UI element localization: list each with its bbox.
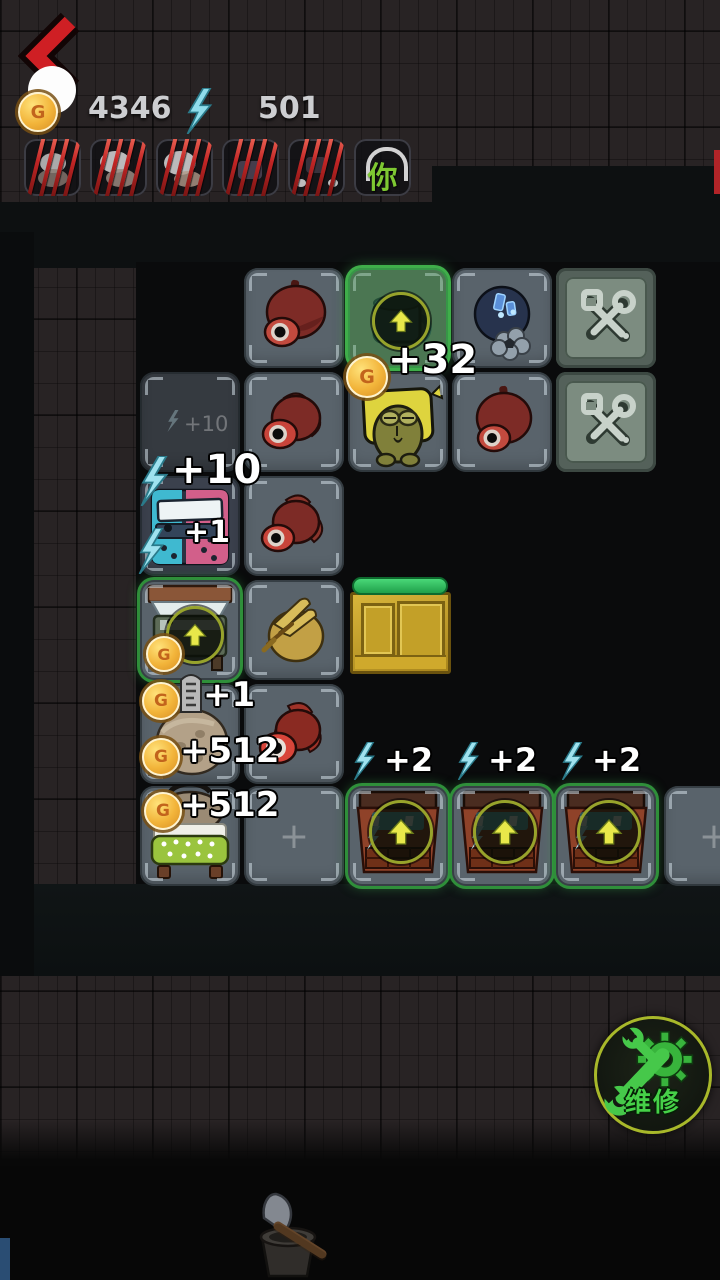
coin-letter: G — [157, 645, 170, 664]
background-bottom-band — [0, 1166, 720, 1280]
energy-icon — [136, 528, 166, 574]
cell-red-creature[interactable] — [452, 372, 552, 472]
energy-icon — [456, 742, 480, 780]
red-creature-icon — [244, 268, 344, 368]
game-screen: G 4346 501 — [0, 0, 720, 1280]
cell-repair-tile[interactable] — [556, 372, 656, 472]
gold-coin-icon: G — [144, 792, 182, 830]
gold-coin-icon: G — [146, 636, 182, 672]
grave-bonus-label: +1 — [203, 678, 255, 712]
red-sliver — [714, 150, 720, 194]
energy-icon — [560, 742, 584, 780]
bucket-shovel-icon — [232, 1182, 342, 1280]
coin-letter: G — [154, 747, 168, 767]
cell-generator[interactable] — [452, 786, 552, 886]
gold-coin-icon: G — [142, 682, 180, 720]
blue-sliver — [0, 1238, 10, 1280]
wrench-screwdriver-icon — [566, 382, 646, 462]
roster-slot-defeated[interactable] — [90, 139, 147, 196]
upgrade-arrow-badge — [473, 800, 537, 864]
gravestone-icon — [178, 670, 204, 714]
repair-button-label: 维修 — [597, 1082, 709, 1119]
upgrade-arrow-badge — [577, 800, 641, 864]
cell-empty[interactable]: + — [664, 786, 720, 886]
energy-icon — [352, 742, 376, 780]
cell-generator[interactable] — [556, 786, 656, 886]
energy-bonus-label: +2 — [488, 744, 537, 776]
reward-label: +32 — [388, 340, 477, 380]
ghost-bonus-label: +10 — [184, 412, 228, 436]
energy-amount: 501 — [258, 94, 321, 124]
cell-generator[interactable] — [348, 786, 448, 886]
cell-red-creature[interactable] — [244, 268, 344, 368]
door-progress-bar — [352, 577, 448, 595]
energy-icon — [166, 410, 180, 432]
wrench-screwdriver-icon — [566, 278, 646, 358]
gold-hand-icon — [244, 580, 344, 680]
gold-coin-icon: G — [142, 738, 180, 776]
cell-gold-hand[interactable] — [244, 580, 344, 680]
roster-slot-defeated[interactable] — [24, 139, 81, 196]
gold-bonus-label: +512 — [180, 788, 279, 822]
coin-letter: G — [156, 801, 170, 821]
energy-bonus-label: +2 — [592, 744, 641, 776]
door-panel — [361, 603, 395, 657]
gold-coin-icon: G — [346, 356, 388, 398]
cell-repair-tile[interactable] — [556, 268, 656, 368]
count-label: +1 — [184, 518, 230, 548]
gold-door[interactable] — [350, 592, 451, 674]
roster-slot-defeated[interactable] — [156, 139, 213, 196]
roster-slot-active[interactable]: 你 — [354, 139, 411, 196]
background-band — [34, 884, 720, 976]
door-panel — [397, 601, 445, 661]
energy-bonus-label: +10 — [172, 450, 261, 490]
energy-bonus-label: +2 — [384, 744, 433, 776]
background-band — [0, 202, 720, 268]
coin-letter: G — [31, 102, 46, 123]
repair-button[interactable]: 维修 — [594, 1016, 712, 1134]
coin-letter: G — [359, 366, 375, 388]
gold-coin-icon: G — [18, 92, 58, 132]
coin-letter: G — [154, 691, 168, 711]
active-character-glyph: 你 — [354, 153, 411, 196]
upgrade-arrow-badge — [369, 800, 433, 864]
roster-slot-defeated[interactable] — [288, 139, 345, 196]
roster-slot-defeated[interactable] — [222, 139, 279, 196]
empty-plus: + — [664, 786, 720, 886]
gold-bonus-label: +512 — [180, 734, 279, 768]
energy-icon — [138, 456, 170, 506]
energy-icon — [184, 88, 214, 134]
door-sill — [355, 655, 446, 669]
background-corridor-left — [0, 232, 34, 976]
red-creature-icon — [452, 372, 552, 472]
gold-amount: 4346 — [88, 94, 172, 124]
